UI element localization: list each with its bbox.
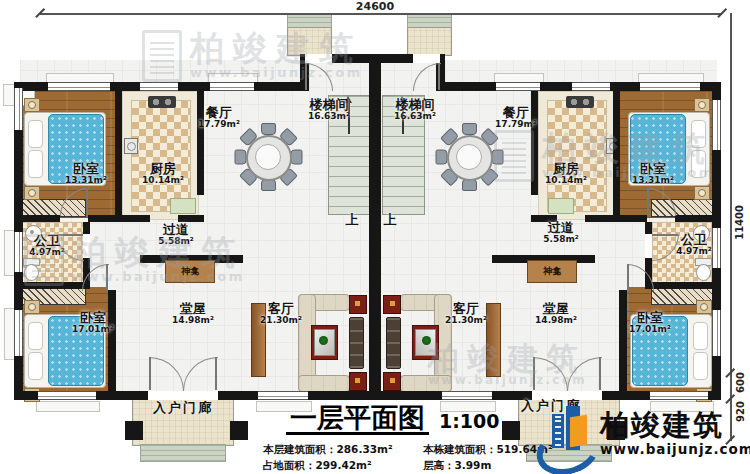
- door-leaf: [215, 357, 217, 390]
- room-label-dining-left: 餐厅 17.79m²: [198, 106, 240, 130]
- wall: [88, 215, 150, 222]
- porch-pillar: [230, 421, 248, 440]
- brand-name: 柏竣建筑: [600, 411, 750, 440]
- shrine-label: 神龛: [181, 265, 199, 278]
- room-area: 17.79m²: [495, 120, 537, 130]
- room-label-kitchen-left: 厨房 10.14m²: [142, 162, 184, 186]
- door-opening: [413, 54, 440, 63]
- room-area: 17.01m²: [72, 325, 114, 335]
- plan-title: 一层平面图: [286, 404, 429, 435]
- door-opening: [83, 234, 90, 258]
- room-area: 21.30m²: [260, 316, 302, 326]
- room-label-bedroom-front-right: 卧室 13.31m²: [632, 162, 674, 186]
- stairs-up-label-right: 上: [384, 213, 397, 227]
- plant-icon: [319, 336, 328, 345]
- door-opening: [305, 54, 332, 63]
- wall: [110, 82, 140, 91]
- room-area: 16.63m²: [394, 112, 436, 122]
- brand-logo-icon: [536, 404, 594, 466]
- tv-icon: [349, 295, 367, 314]
- wall: [619, 290, 627, 391]
- dimension-top-line: [40, 13, 722, 15]
- window: [14, 232, 23, 272]
- window: [38, 391, 96, 400]
- door-opening: [148, 391, 218, 400]
- porch-steps-left: [140, 444, 226, 462]
- room-area: 14.98m²: [172, 316, 214, 326]
- wall: [585, 215, 647, 222]
- floor-mat-icon: [548, 198, 574, 214]
- room-label-hall-left: 堂屋 14.98m²: [172, 302, 214, 326]
- stat-floor-area: 本层建筑面积：286.33m²: [263, 443, 413, 457]
- room-label-corridor-right: 过道 5.58m²: [543, 221, 579, 245]
- door-leaf: [149, 357, 151, 390]
- stove-icon: [148, 96, 176, 108]
- wall: [613, 91, 620, 222]
- window: [640, 82, 700, 91]
- door-leaf: [438, 63, 440, 90]
- stove-icon: [566, 96, 594, 108]
- dimension-right-line: [730, 13, 732, 441]
- window: [650, 391, 708, 400]
- room-label-kitchen-right: 厨房 10.14m²: [545, 162, 587, 186]
- room-area: 10.14m²: [545, 176, 587, 186]
- porch-pillar: [125, 421, 143, 440]
- plan-scale: 1:100: [439, 408, 499, 435]
- room-area: 13.31m²: [632, 176, 674, 186]
- wall: [610, 82, 640, 91]
- room-area: 10.14m²: [142, 176, 184, 186]
- room-label-living-left: 客厅 21.30m²: [260, 302, 302, 326]
- sofa-icon: [298, 294, 368, 390]
- door-leaf: [106, 264, 108, 290]
- room-area: 17.01m²: [629, 325, 671, 335]
- tv-icon: [349, 372, 367, 391]
- wall: [675, 215, 721, 222]
- door-leaf: [305, 63, 307, 90]
- wall: [108, 290, 116, 391]
- tv-icon: [383, 372, 401, 391]
- stairs-up-label-left: 上: [346, 213, 359, 227]
- floor-mat-icon: [170, 198, 196, 214]
- wall: [115, 91, 122, 222]
- window: [48, 82, 110, 91]
- armchair-icon: [386, 317, 401, 369]
- sink-icon: [124, 138, 138, 154]
- dining-table-icon: [237, 126, 297, 186]
- dimension-right-value: 11400: [734, 205, 745, 240]
- porch-pillar: [502, 421, 520, 440]
- room-label-dining-right: 餐厅 17.79m²: [495, 106, 537, 130]
- room-label-porch-left: 入户门廊: [153, 401, 213, 415]
- sofa-icon: [382, 294, 452, 390]
- room-label-bedroom-front-left: 卧室 13.31m²: [65, 162, 107, 186]
- room-label-bedroom-rear-left: 卧室 17.01m²: [72, 311, 114, 335]
- armchair-icon: [349, 317, 364, 369]
- door-leaf: [599, 357, 601, 390]
- wall: [14, 391, 721, 400]
- area-stats: 本层建筑面积：286.33m² 本栋建筑面积：519.64m² 占地面积：299…: [263, 443, 553, 473]
- room-area: 14.98m²: [535, 316, 577, 326]
- window: [210, 82, 254, 91]
- room-area: 4.97m²: [676, 247, 712, 257]
- window: [14, 310, 23, 356]
- cabinet-icon: [486, 303, 501, 377]
- shrine-label: 神龛: [543, 265, 561, 278]
- door-opening: [645, 234, 652, 258]
- room-label-stairwell-right: 楼梯间 16.63m²: [394, 98, 436, 122]
- dimension-seg-600: 600: [735, 372, 746, 393]
- room-name: 上: [384, 213, 397, 227]
- door-leaf: [647, 188, 649, 215]
- room-area: 5.58m²: [543, 235, 579, 245]
- room-label-bathroom-right: 公卫 4.97m²: [676, 233, 712, 257]
- wall: [14, 215, 60, 222]
- dining-table-icon: [438, 126, 498, 186]
- window: [258, 391, 308, 400]
- window: [712, 310, 721, 356]
- wall: [441, 82, 496, 91]
- room-area: 13.31m²: [65, 176, 107, 186]
- shrine-table: 神龛: [165, 260, 215, 283]
- room-area: 21.30m²: [445, 316, 487, 326]
- door-leaf: [86, 188, 88, 215]
- window: [140, 82, 178, 91]
- room-label-corridor-left: 过道 5.58m²: [158, 223, 194, 247]
- window: [712, 100, 721, 150]
- wall: [14, 282, 90, 289]
- stat-building-area: 本栋建筑面积：519.64m²: [423, 443, 553, 457]
- window-sill: [36, 401, 100, 412]
- door-leaf: [627, 264, 629, 290]
- room-name: 入户门廊: [153, 401, 213, 415]
- room-label-stairwell-left: 楼梯间 16.63m²: [308, 98, 350, 122]
- shrine-table: 神龛: [527, 260, 577, 283]
- room-label-hall-right: 堂屋 14.98m²: [535, 302, 577, 326]
- window: [442, 391, 492, 400]
- door-leaf: [533, 357, 535, 390]
- wall: [645, 282, 721, 289]
- window: [572, 82, 610, 91]
- brand-block: 柏竣建筑 www.baijunjz.com: [536, 404, 750, 466]
- dimension-top-value: 24600: [340, 0, 410, 13]
- brand-url: www.baijunjz.com: [600, 440, 750, 459]
- room-label-bathroom-left: 公卫 4.97m²: [29, 234, 65, 258]
- room-area: 4.97m²: [29, 248, 65, 258]
- room-label-living-right: 客厅 21.30m²: [445, 302, 487, 326]
- rear-porch-left: [287, 27, 332, 56]
- kitchen-tile-right: [547, 100, 607, 212]
- wall: [540, 82, 572, 91]
- window: [496, 82, 540, 91]
- room-area: 16.63m²: [308, 112, 350, 122]
- title-block: 一层平面图 1:100: [286, 404, 499, 435]
- plant-icon: [422, 336, 431, 345]
- toilet-icon: [24, 264, 39, 281]
- tv-icon: [383, 295, 401, 314]
- window: [712, 228, 721, 268]
- room-name: 上: [346, 213, 359, 227]
- room-area: 5.58m²: [158, 237, 194, 247]
- toilet-icon: [696, 264, 711, 281]
- door-leaf: [652, 234, 678, 236]
- wall-party: [369, 54, 381, 391]
- kitchen-tile-left: [131, 100, 191, 212]
- floor-plan-canvas: 神龛 神龛: [0, 0, 750, 474]
- rear-porch-right: [407, 27, 452, 56]
- stat-land-area: 占地面积：299.42m²: [263, 459, 413, 473]
- stat-floor-height: 层高：3.99m: [423, 459, 553, 473]
- window: [14, 88, 23, 130]
- room-area: 17.79m²: [198, 120, 240, 130]
- room-label-bedroom-rear-right: 卧室 17.01m²: [629, 311, 671, 335]
- wall: [178, 82, 210, 91]
